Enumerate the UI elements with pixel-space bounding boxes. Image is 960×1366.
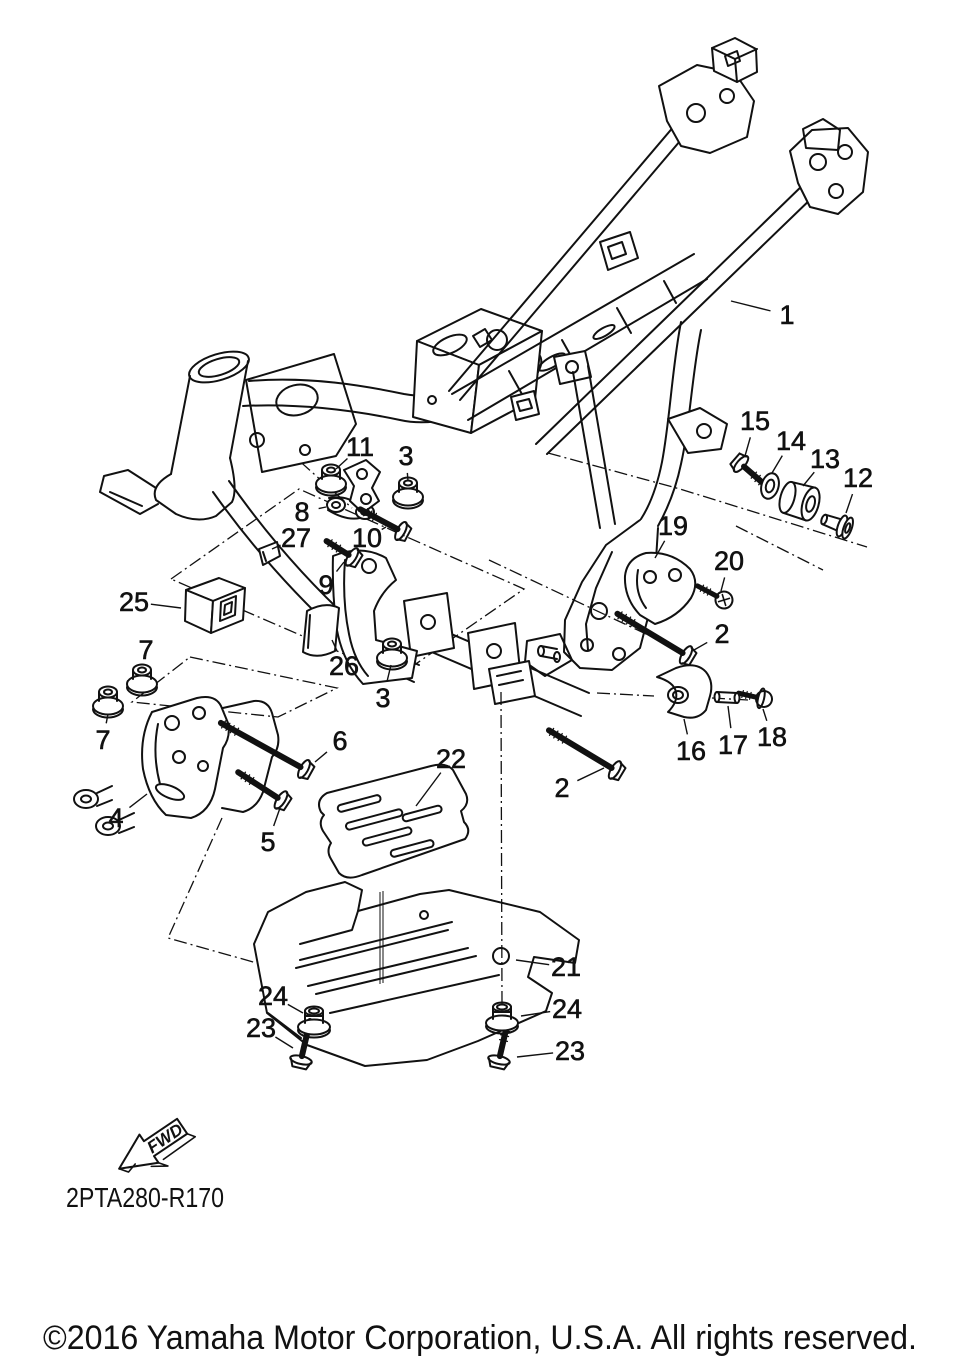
- callout-23: 23: [246, 1013, 276, 1043]
- callout-leader-14: [772, 456, 782, 473]
- diagram-code: 2PTA280-R170: [66, 1182, 224, 1213]
- copyright-text: ©2016 Yamaha Motor Corporation, U.S.A. A…: [43, 1319, 917, 1357]
- callout-18: 18: [757, 722, 787, 752]
- callout-19: 19: [658, 511, 688, 541]
- callout-16: 16: [676, 736, 706, 766]
- part-7-nut-lower: [93, 687, 123, 718]
- part-6-bolt: [216, 714, 316, 781]
- part-13-bushing: [776, 479, 823, 522]
- callout-leader-6: [315, 752, 327, 762]
- callout-leader-2: [577, 768, 604, 781]
- callout-7: 7: [138, 635, 153, 665]
- callout-leader-25: [151, 604, 181, 608]
- callout-leader-5: [274, 808, 280, 826]
- part-21-skid-plate: [254, 882, 579, 1066]
- callout-leader-8: [319, 507, 326, 509]
- left-dampers: [74, 786, 134, 835]
- callout-23: 23: [555, 1036, 585, 1066]
- part-3-nut-upper: [393, 478, 423, 509]
- callout-20: 20: [714, 546, 744, 576]
- callout-leader-2: [694, 642, 707, 650]
- callout-leader-3: [407, 473, 408, 481]
- lower-cross-tube: [404, 593, 589, 716]
- callout-13: 13: [810, 444, 840, 474]
- callout-6: 6: [332, 726, 347, 756]
- callout-3: 3: [398, 441, 413, 471]
- callout-leader-15: [745, 437, 750, 456]
- fwd-arrow: FWD: [110, 1109, 201, 1189]
- callout-4: 4: [108, 803, 123, 833]
- callout-leader-23: [517, 1053, 553, 1057]
- head-tube: [100, 346, 252, 520]
- callout-leader-17: [728, 706, 731, 728]
- exploded-parts-diagram: 1151413121138271091920225772631617186452…: [0, 0, 960, 1366]
- part-26-plate: [303, 605, 339, 656]
- callout-leader-20: [721, 577, 725, 591]
- callout-17: 17: [718, 730, 748, 760]
- part-16-damper: [657, 665, 711, 717]
- callout-leader-13: [803, 472, 814, 486]
- part-20-screw: [694, 578, 736, 611]
- part-5-bolt: [233, 764, 293, 813]
- callout-3: 3: [375, 683, 390, 713]
- part-11-nut: [316, 465, 346, 496]
- callout-leader-10: [382, 527, 386, 529]
- callout-14: 14: [776, 426, 806, 456]
- frame-stay: [344, 460, 380, 513]
- part-22-mat: [319, 765, 468, 878]
- callout-leader-16: [684, 719, 687, 734]
- part-18-screw: [736, 683, 774, 710]
- frame-gusset-plate: [246, 354, 356, 472]
- part-7-nut-upper: [127, 665, 157, 696]
- callout-15: 15: [740, 406, 770, 436]
- callout-22: 22: [436, 744, 466, 774]
- part-14-washer: [758, 471, 782, 501]
- callout-24: 24: [552, 994, 582, 1024]
- callout-21: 21: [551, 952, 581, 982]
- callout-25: 25: [119, 587, 149, 617]
- part-25-block: [185, 578, 245, 633]
- callout-1: 1: [779, 300, 794, 330]
- callout-10: 10: [352, 523, 382, 553]
- exploded-parts: [93, 451, 855, 1070]
- rear-down-tube: [573, 322, 727, 528]
- callout-9: 9: [318, 570, 333, 600]
- parts-diagram-page: 1151413121138271091920225772631617186452…: [0, 0, 960, 1366]
- callout-26: 26: [329, 651, 359, 681]
- callout-leader-12: [846, 494, 852, 513]
- part-17-pin: [715, 692, 740, 703]
- part-27-wedge: [259, 542, 280, 565]
- rear-rail-right: [536, 119, 868, 454]
- callout-12: 12: [843, 463, 873, 493]
- callout-27: 27: [281, 523, 311, 553]
- callout-leader-1: [731, 301, 771, 311]
- callout-2: 2: [554, 773, 569, 803]
- callout-leader-18: [763, 709, 767, 721]
- callout-11: 11: [346, 432, 374, 462]
- callout-leader-23: [275, 1037, 293, 1048]
- callout-leader-4: [129, 794, 147, 808]
- part-19-plate: [625, 553, 695, 624]
- part-12-collar: [818, 508, 855, 539]
- callout-5: 5: [260, 827, 275, 857]
- callout-2: 2: [714, 619, 729, 649]
- callout-7: 7: [95, 725, 110, 755]
- callout-24: 24: [258, 981, 288, 1011]
